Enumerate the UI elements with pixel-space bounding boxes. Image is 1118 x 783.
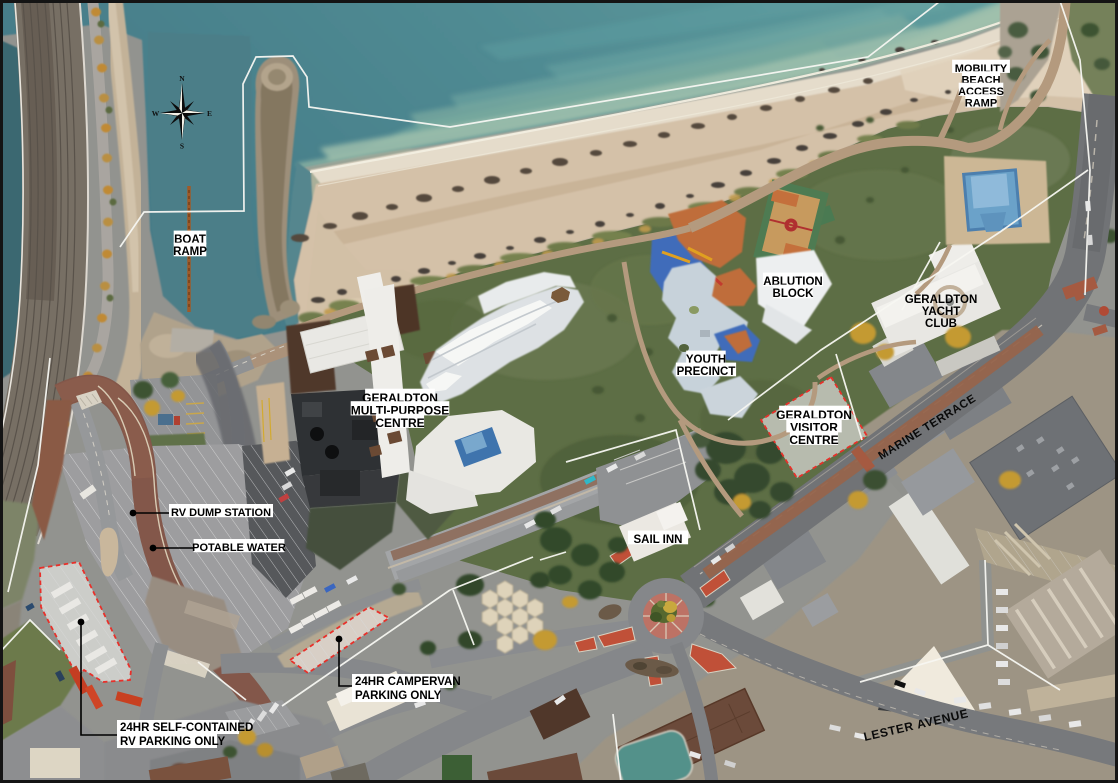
- svg-text:SAIL INN: SAIL INN: [634, 534, 683, 546]
- svg-text:GERALDTON: GERALDTON: [905, 294, 978, 306]
- svg-text:RV PARKING ONLY: RV PARKING ONLY: [120, 736, 226, 748]
- svg-text:RV DUMP STATION: RV DUMP STATION: [171, 507, 271, 519]
- svg-text:RAMP: RAMP: [173, 246, 207, 258]
- svg-text:S: S: [180, 142, 184, 151]
- svg-text:24HR CAMPERVAN: 24HR CAMPERVAN: [355, 676, 461, 688]
- svg-text:CENTRE: CENTRE: [789, 433, 838, 447]
- svg-text:W: W: [152, 109, 160, 118]
- svg-text:YACHT: YACHT: [922, 306, 961, 318]
- svg-text:PARKING ONLY: PARKING ONLY: [355, 690, 442, 702]
- svg-text:N: N: [179, 74, 185, 83]
- svg-text:BLOCK: BLOCK: [773, 288, 815, 300]
- svg-text:POTABLE WATER: POTABLE WATER: [192, 542, 286, 554]
- svg-text:PRECINCT: PRECINCT: [677, 366, 736, 378]
- svg-text:24HR SELF-CONTAINED: 24HR SELF-CONTAINED: [120, 722, 253, 734]
- svg-text:E: E: [207, 109, 212, 118]
- svg-text:RAMP: RAMP: [965, 97, 997, 109]
- svg-text:CLUB: CLUB: [925, 318, 957, 330]
- svg-text:CENTRE: CENTRE: [375, 416, 424, 430]
